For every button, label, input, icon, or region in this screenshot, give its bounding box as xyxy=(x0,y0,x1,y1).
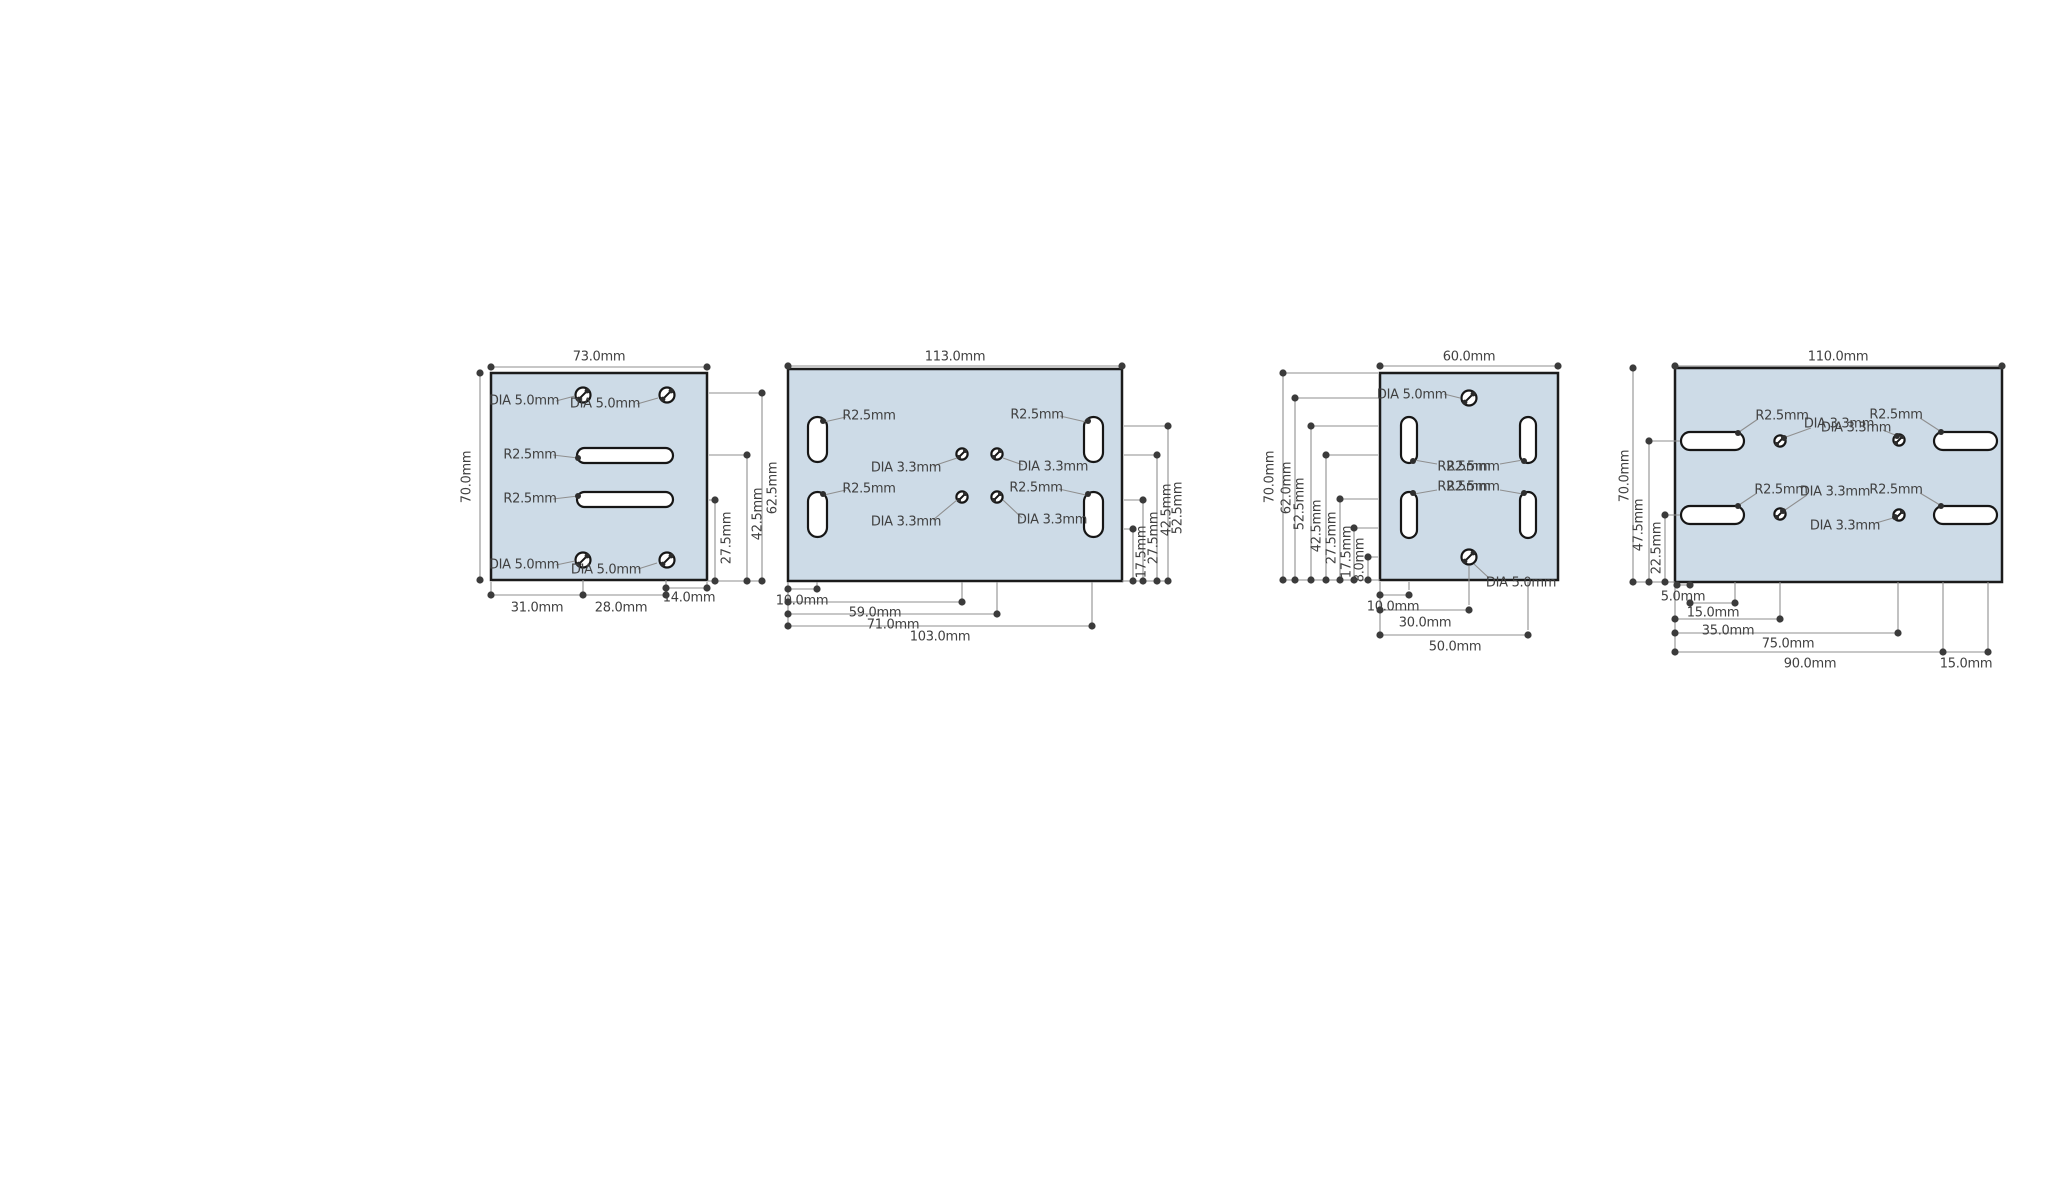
plate2-hole-dia-label-4: DIA 3.3mm xyxy=(1017,514,1087,527)
plate4-slot-upper-left xyxy=(1681,432,1744,450)
plate4-bottom-dim-label-1: 5.0mm xyxy=(1661,591,1706,604)
plate1-bottom-dim-label-1: 31.0mm xyxy=(511,602,563,615)
plate3-slot-upper-left xyxy=(1401,417,1417,463)
plate1-hole-top-right xyxy=(660,388,675,403)
plate4-left-dim-label-1: 70.0mm xyxy=(1619,450,1632,502)
plate2-hole-lower-left xyxy=(956,491,967,502)
cad-drawing-canvas: 73.0mm 70.0mm 27.5mm 42.5mm 62.5mm 31.0m… xyxy=(0,0,2048,1190)
plate3-slot-upper-right xyxy=(1520,417,1536,463)
plate4-slot-radius-label-4: R2.5mm xyxy=(1869,484,1922,497)
plate2-bottom-dim-label-4: 103.0mm xyxy=(910,631,970,644)
plate1-slot-radius-label-1: R2.5mm xyxy=(503,449,556,462)
plate4-slot-lower-right xyxy=(1934,506,1997,524)
plate1-slot-lower xyxy=(577,492,673,507)
plate4-width-dim-label: 110.0mm xyxy=(1808,351,1868,364)
plate3-left-dim-label-1: 70.0mm xyxy=(1264,451,1277,503)
plate1-bottom-dim-label-3: 14.0mm xyxy=(663,592,715,605)
plate1-hole-dia-label-3: DIA 5.0mm xyxy=(489,559,559,572)
plate2-hole-lower-right xyxy=(991,491,1002,502)
plate3-left-dim-label-7: 8.0mm xyxy=(1354,538,1367,583)
plate3-left-dim-label-5: 27.5mm xyxy=(1326,512,1339,564)
plate3-slot-lower-right xyxy=(1520,492,1536,538)
plate4-bottom-dim-label-5: 90.0mm xyxy=(1784,658,1836,671)
plate4-bottom-dim-label-2: 15.0mm xyxy=(1687,607,1739,620)
plate1-hole-dia-label-1: DIA 5.0mm xyxy=(489,395,559,408)
plate4-slot-lower-left xyxy=(1681,506,1744,524)
plate1-right-dim-label-1: 27.5mm xyxy=(721,512,734,564)
plate4-bottom-dim-label-3: 35.0mm xyxy=(1702,625,1754,638)
plate1-bottom-dim-label-2: 28.0mm xyxy=(595,602,647,615)
plate2-hole-upper-right xyxy=(991,448,1002,459)
plate1-slot-radius-label-2: R2.5mm xyxy=(503,493,556,506)
plate2-bottom-dim-label-1: 10.0mm xyxy=(776,595,828,608)
plate2-right-dim-label-4: 52.5mm xyxy=(1172,482,1185,534)
plate4-slot-upper-right xyxy=(1934,432,1997,450)
plate3-width-dim-label: 60.0mm xyxy=(1443,351,1495,364)
plate4-bottom-dim-label-4: 75.0mm xyxy=(1762,638,1814,651)
plate2-hole-dia-label-3: DIA 3.3mm xyxy=(1018,461,1088,474)
plate3-slot-lower-left xyxy=(1401,492,1417,538)
plate2-slot-radius-label-4: R2.5mm xyxy=(1009,482,1062,495)
plate3-left-dim-label-4: 42.5mm xyxy=(1311,500,1324,552)
plate2-slot-radius-label-1: R2.5mm xyxy=(842,410,895,423)
plate4-left-dim-label-2: 47.5mm xyxy=(1633,499,1646,551)
plate3-hole-bottom xyxy=(1462,550,1477,565)
plate3-hole-dia-label-top: DIA 5.0mm xyxy=(1377,389,1447,402)
plate3-hole-top xyxy=(1462,391,1477,406)
plate2-width-dim-label: 113.0mm xyxy=(925,351,985,364)
plate2-outline xyxy=(788,369,1122,581)
plate1-right-dim-label-3: 62.5mm xyxy=(767,462,780,514)
plate2-slot-radius-label-3: R2.5mm xyxy=(1010,409,1063,422)
plate3-slot-radius-label-2: R2.5mm xyxy=(1446,461,1499,474)
plate3-slot-radius-label-4: R2.5mm xyxy=(1446,481,1499,494)
plate1-hole-dia-label-2: DIA 5.0mm xyxy=(570,398,640,411)
plate4-bottom-dim-label-6: 15.0mm xyxy=(1940,658,1992,671)
plate1-hole-dia-label-4: DIA 5.0mm xyxy=(571,564,641,577)
plate4-hole-dia-label-3: DIA 3.3mm xyxy=(1800,486,1870,499)
plate1-height-dim-label: 70.0mm xyxy=(461,451,474,503)
plate3-bottom-dim-label-2: 30.0mm xyxy=(1399,617,1451,630)
plate4-left-dim-label-3: 22.5mm xyxy=(1651,522,1664,574)
plate3-left-dim-label-3: 52.5mm xyxy=(1294,478,1307,530)
plate2-hole-dia-label-1: DIA 3.3mm xyxy=(871,462,941,475)
plate4-hole-dia-label-4: DIA 3.3mm xyxy=(1810,520,1880,533)
plate3-hole-dia-label-bottom: DIA 5.0mm xyxy=(1486,577,1556,590)
plate2-slot-lower-left xyxy=(808,492,827,537)
plate2-slot-radius-label-2: R2.5mm xyxy=(842,483,895,496)
plate4-slot-radius-label-1: R2.5mm xyxy=(1755,410,1808,423)
plate1-hole-bottom-right xyxy=(660,553,675,568)
plate2-hole-upper-left xyxy=(956,448,967,459)
plate1-right-dim-label-2: 42.5mm xyxy=(752,488,765,540)
plate3-bottom-dim-label-1: 10.0mm xyxy=(1367,601,1419,614)
plate4-outline xyxy=(1675,368,2002,582)
plate1-slot-upper xyxy=(577,448,673,463)
plate1-width-dim-label: 73.0mm xyxy=(573,351,625,364)
plate3-bottom-dim-label-3: 50.0mm xyxy=(1429,641,1481,654)
engineering-drawing xyxy=(0,0,2048,1190)
plate4-hole-dia-label-2: DIA 3.3mm xyxy=(1821,422,1891,435)
plate2-hole-dia-label-2: DIA 3.3mm xyxy=(871,516,941,529)
